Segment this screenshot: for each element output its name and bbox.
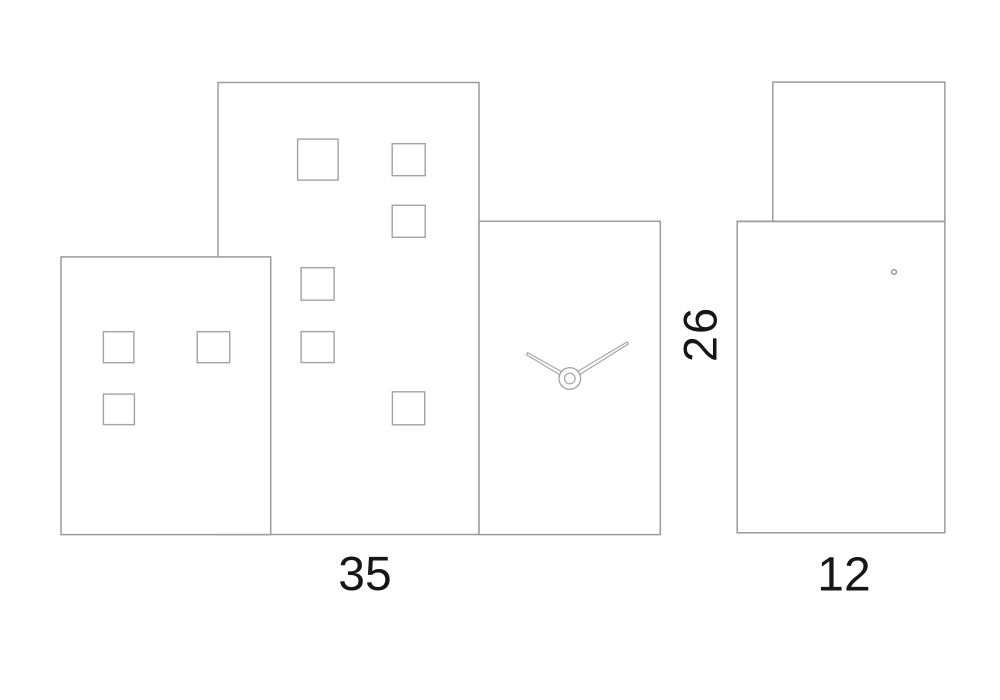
svg-text:35: 35 — [338, 548, 391, 601]
svg-text:12: 12 — [817, 549, 870, 602]
svg-text:26: 26 — [674, 306, 727, 362]
